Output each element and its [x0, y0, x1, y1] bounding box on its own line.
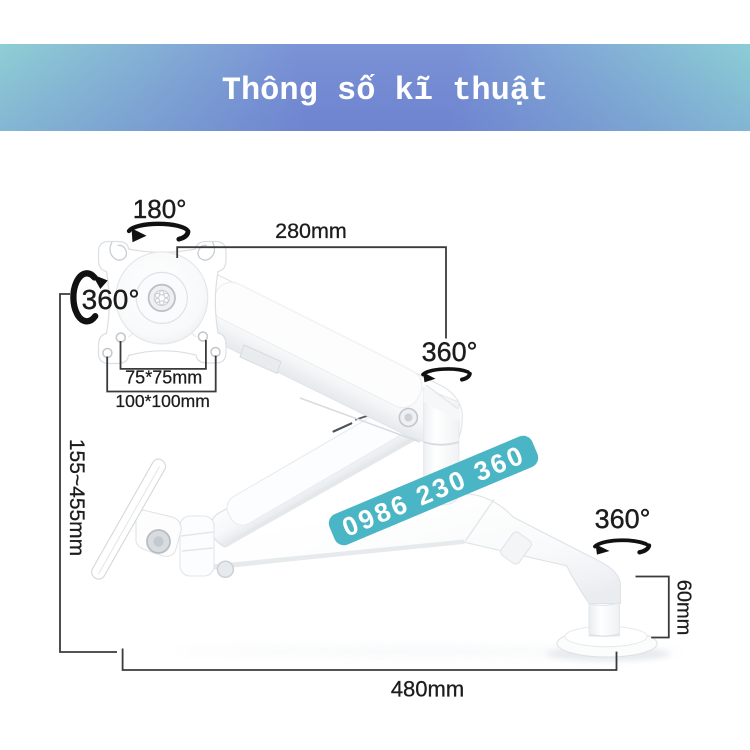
svg-text:60mm: 60mm	[673, 580, 695, 636]
svg-text:360°: 360°	[422, 337, 478, 367]
svg-text:100*100mm: 100*100mm	[115, 391, 209, 411]
svg-text:Thông số kĩ thuật: Thông số kĩ thuật	[222, 72, 548, 109]
svg-text:480mm: 480mm	[391, 677, 464, 702]
svg-text:360°: 360°	[595, 504, 651, 534]
svg-text:75*75mm: 75*75mm	[125, 368, 202, 388]
svg-text:360°: 360°	[82, 284, 140, 315]
svg-text:180°: 180°	[133, 194, 187, 224]
svg-text:155~455mm: 155~455mm	[65, 439, 88, 556]
svg-text:280mm: 280mm	[275, 219, 347, 243]
